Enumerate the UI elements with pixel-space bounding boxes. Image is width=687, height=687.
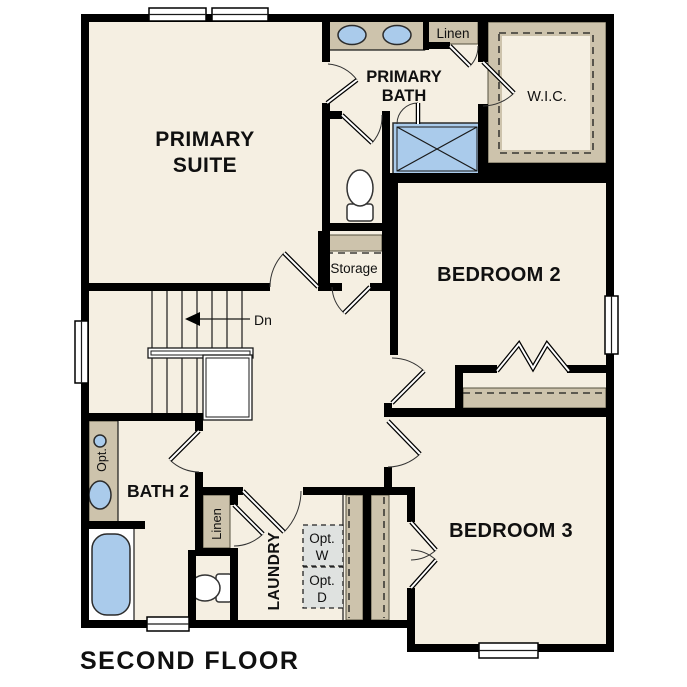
wall bbox=[81, 521, 145, 529]
bathtub-icon bbox=[92, 534, 130, 615]
wall bbox=[195, 421, 203, 431]
linen-lower-label: Linen bbox=[209, 508, 224, 540]
bedroom3-label: BEDROOM 3 bbox=[449, 520, 573, 542]
bath2-sink-icon bbox=[89, 481, 111, 509]
bedroom2-closet-shelf bbox=[463, 388, 606, 408]
wall bbox=[318, 231, 326, 283]
wall bbox=[230, 556, 238, 620]
bath2-label: BATH 2 bbox=[127, 481, 189, 501]
wall bbox=[195, 548, 238, 556]
wall bbox=[322, 14, 330, 62]
stairwell-opening-rail bbox=[203, 355, 252, 420]
storage-shelf bbox=[326, 235, 382, 251]
wall bbox=[407, 487, 415, 522]
bedroom3-closet-shelf bbox=[371, 495, 389, 620]
laundry-label: LAUNDRY bbox=[266, 531, 283, 610]
wall bbox=[390, 173, 614, 183]
wall bbox=[478, 14, 488, 62]
storage-label: Storage bbox=[330, 261, 377, 276]
optional-sink-label: Opt. bbox=[95, 448, 109, 472]
wall bbox=[370, 283, 390, 291]
linen-upper-label: Linen bbox=[436, 26, 469, 41]
stair-down-label: Dn bbox=[254, 312, 272, 328]
wall bbox=[318, 283, 342, 291]
primary-bath-label-line2: BATH bbox=[382, 87, 427, 105]
wall bbox=[188, 550, 196, 620]
wall bbox=[322, 223, 390, 231]
floor-plan-drawing: PRIMARY SUITE PRIMARY BATH Linen W.I.C. … bbox=[0, 0, 687, 687]
floor-plan-page: PRIMARY SUITE PRIMARY BATH Linen W.I.C. … bbox=[0, 0, 687, 687]
optional-washer-label-line2: W bbox=[316, 548, 329, 563]
wall bbox=[423, 42, 450, 49]
optional-dryer-label-line1: Opt. bbox=[309, 573, 335, 588]
page-title: SECOND FLOOR bbox=[80, 647, 299, 675]
wall bbox=[81, 413, 203, 421]
wall bbox=[390, 183, 398, 355]
primary-bath-label-line1: PRIMARY bbox=[366, 68, 441, 86]
wall bbox=[478, 163, 614, 173]
toilet-bowl-icon bbox=[347, 170, 373, 206]
optional-sink-icon bbox=[94, 435, 106, 447]
optional-washer-label-line1: Opt. bbox=[309, 531, 335, 546]
wall bbox=[390, 408, 614, 417]
bedroom2-label: BEDROOM 2 bbox=[437, 264, 561, 286]
wall bbox=[478, 104, 488, 165]
primary-suite-label-line1: PRIMARY bbox=[155, 128, 255, 151]
wic-label: W.I.C. bbox=[527, 89, 566, 105]
wall bbox=[384, 467, 392, 487]
wall bbox=[455, 365, 497, 373]
wall bbox=[230, 487, 238, 505]
vanity-sink-icon bbox=[383, 26, 411, 45]
primary-suite-label-line2: SUITE bbox=[173, 154, 237, 177]
wall bbox=[382, 111, 390, 291]
wall bbox=[81, 283, 270, 291]
wall bbox=[195, 472, 203, 556]
wall bbox=[363, 487, 371, 622]
vanity-sink-icon bbox=[338, 26, 366, 45]
wall bbox=[303, 487, 415, 495]
wall bbox=[407, 588, 415, 652]
wall bbox=[567, 365, 606, 373]
optional-dryer-label-line2: D bbox=[317, 590, 327, 605]
wall bbox=[330, 111, 342, 119]
